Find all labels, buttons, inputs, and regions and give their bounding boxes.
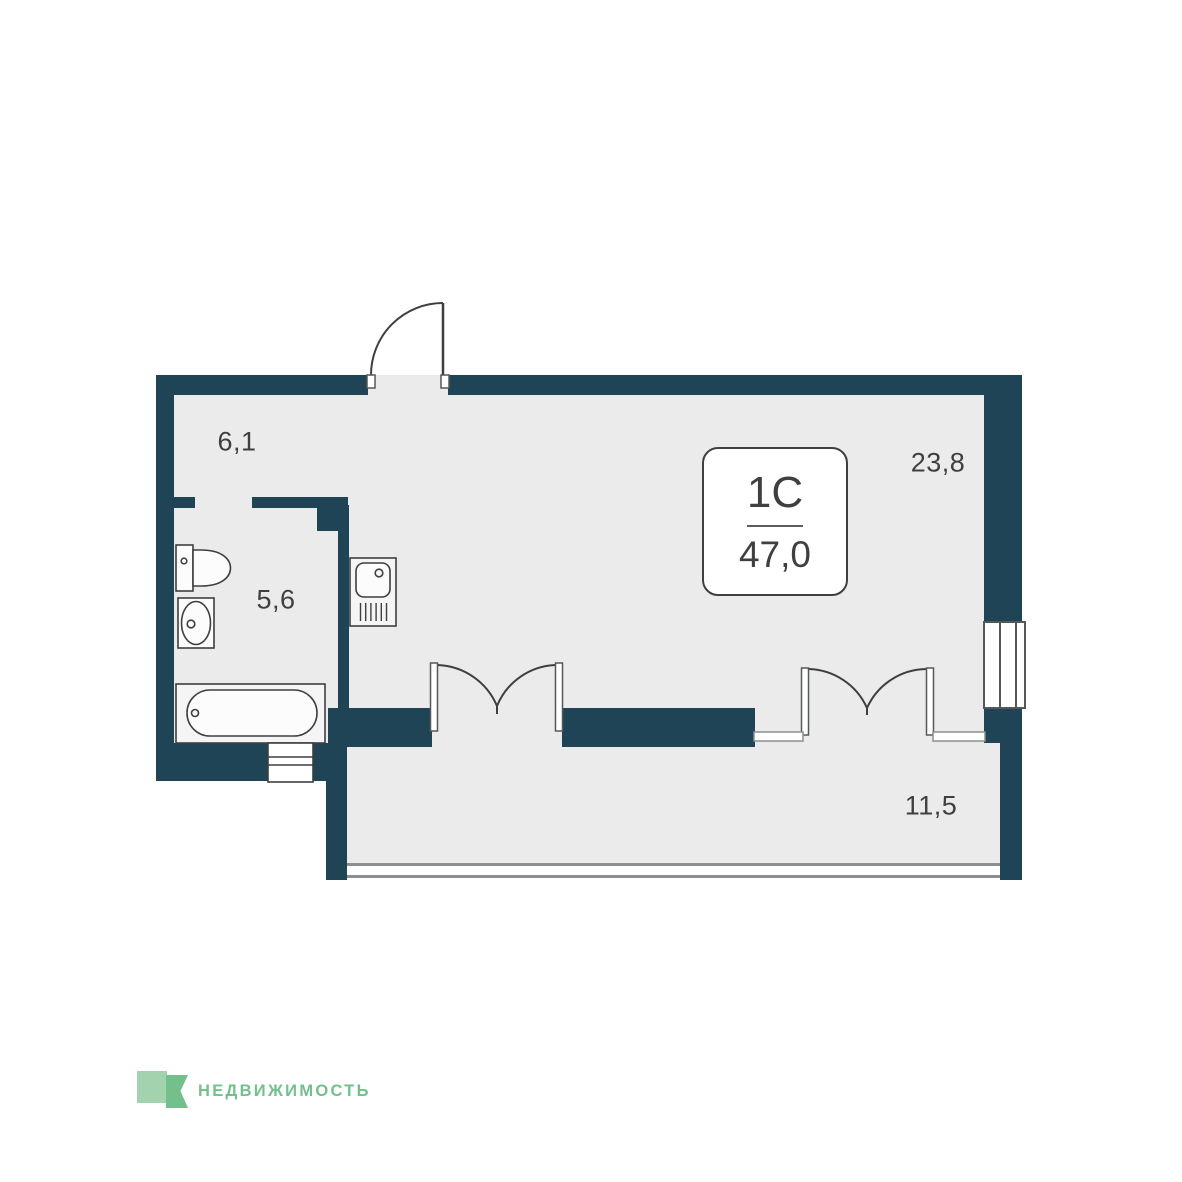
door1-leaf-right — [556, 663, 563, 731]
wall-bottom-room-left — [326, 747, 347, 880]
room-area-label-living-room: 23,8 — [911, 448, 966, 479]
room-area-label-hallway: 6,1 — [217, 427, 256, 458]
sink-basin — [356, 563, 390, 597]
entrance-door-swing-arc — [371, 303, 443, 375]
basin-counter — [178, 598, 214, 648]
wall-bath-stub — [156, 497, 195, 508]
wall-left — [156, 375, 174, 743]
logo-ribbon-icon — [137, 1066, 197, 1128]
wall-right-upper — [984, 375, 1022, 623]
room-area-label-bedroom: 11,5 — [905, 791, 958, 822]
door2-threshold-left — [754, 732, 803, 741]
wall-top-left — [156, 375, 368, 395]
unit-total-area-label: 47,0 — [739, 536, 811, 573]
door2-leaf-right — [927, 668, 934, 735]
wall-right-lower — [1000, 743, 1022, 880]
shaft-box — [268, 743, 313, 782]
floor-plan-page: 6,1 5,6 23,8 11,5 1C 47,0 НЕДВИЖИМОСТЬ — [0, 0, 1182, 1182]
logo-square — [137, 1071, 167, 1103]
kitchen-sink — [350, 558, 396, 626]
wall-mid-left — [328, 708, 432, 747]
door2-threshold-right — [933, 732, 985, 741]
toilet-tank — [176, 545, 193, 591]
door1-leaf-left — [431, 663, 438, 731]
floor-bottom-room — [326, 747, 1000, 878]
wall-top-right — [448, 375, 1022, 395]
unit-info-card: 1C 47,0 — [702, 447, 848, 596]
wall-bath-corner — [317, 505, 349, 531]
wall-bath-right — [338, 531, 349, 708]
room-area-label-bathroom: 5,6 — [256, 585, 295, 616]
duct-shaft — [268, 743, 313, 782]
wall-right-mid — [984, 707, 1022, 743]
wall-mid-center — [562, 708, 755, 747]
entrance-door-frame-left — [367, 375, 375, 388]
floor-entrance-threshold — [368, 375, 448, 397]
wash-basin — [178, 598, 214, 648]
brand-name: НЕДВИЖИМОСТЬ — [198, 1082, 371, 1101]
floor-plan-drawing — [0, 0, 1182, 1182]
window-right — [984, 622, 1025, 708]
door2-leaf-left — [802, 668, 809, 735]
window-bottom — [347, 864, 1000, 877]
wall-bottom-left-block — [156, 743, 268, 781]
logo-ribbon — [166, 1075, 188, 1108]
bathtub-basin — [187, 690, 317, 736]
unit-card-divider — [747, 525, 803, 527]
floor-area — [174, 375, 1000, 878]
entrance-door-frame-right — [441, 375, 449, 388]
bathtub — [176, 684, 325, 743]
unit-type-label: 1C — [747, 471, 803, 515]
